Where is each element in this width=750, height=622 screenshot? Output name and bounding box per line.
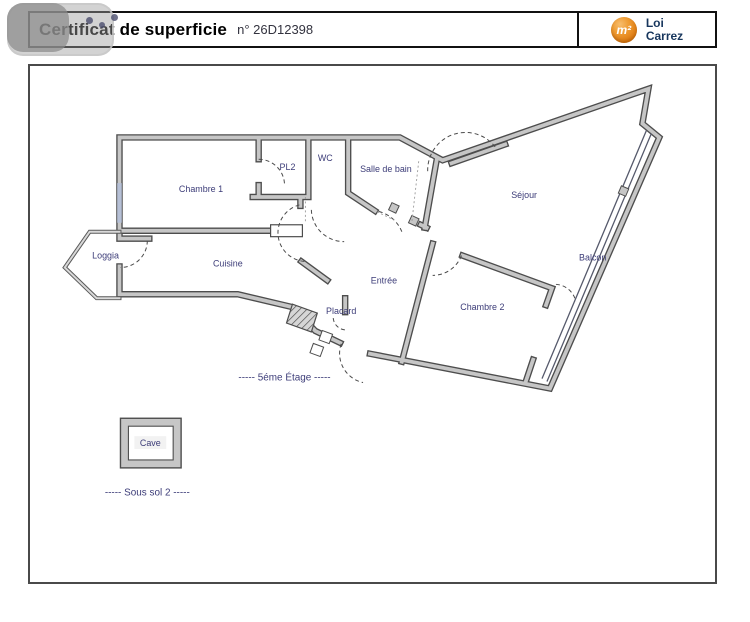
room-label-cave: Cave xyxy=(140,438,161,448)
room-label-cuisine: Cuisine xyxy=(213,258,243,268)
room-label-placard: Placard xyxy=(326,306,356,316)
room-label-chambre1: Chambre 1 xyxy=(179,184,223,194)
room-label-wc: WC xyxy=(318,153,333,163)
loi-text: Loi xyxy=(646,17,683,30)
header-title-area: Certificat de superficie n° 26D12398 xyxy=(30,13,577,46)
door-jamb xyxy=(389,203,400,214)
carrez-text: Carrez xyxy=(646,30,683,43)
certificate-page: Certificat de superficie n° 26D12398 m² … xyxy=(0,0,750,622)
loi-carrez-label: Loi Carrez xyxy=(646,17,683,43)
floor-plan-frame: Chambre 1 PL2 WC Salle de bain Séjour Ba… xyxy=(28,64,717,584)
window-chambre1 xyxy=(117,183,122,223)
room-label-loggia: Loggia xyxy=(92,251,119,261)
m2-logo-icon: m² xyxy=(611,17,637,43)
header: Certificat de superficie n° 26D12398 m² … xyxy=(28,11,717,48)
hatched-duct xyxy=(287,304,318,332)
placard-compartment xyxy=(310,343,324,356)
walls-outline-layer xyxy=(119,89,659,389)
floor-caption-5eme-etage: ----- 5éme Étage ----- xyxy=(238,373,330,384)
room-label-chambre2: Chambre 2 xyxy=(460,302,504,312)
room-label-pl2: PL2 xyxy=(280,162,296,172)
loi-carrez-logo: m² Loi Carrez xyxy=(577,13,715,46)
document-title: Certificat de superficie xyxy=(39,20,227,40)
floor-plan-drawing: Chambre 1 PL2 WC Salle de bain Séjour Ba… xyxy=(30,66,715,582)
document-number: n° 26D12398 xyxy=(237,22,313,37)
cased-opening xyxy=(271,225,303,237)
loggia-walls xyxy=(65,232,120,298)
floor-caption-sous-sol: ----- Sous sol 2 ----- xyxy=(105,488,190,499)
walls-fill-layer xyxy=(119,89,659,389)
room-label-balcon: Balcon xyxy=(579,252,606,262)
room-label-salle-de-bain: Salle de bain xyxy=(360,164,412,174)
room-label-sejour: Séjour xyxy=(511,190,537,200)
room-label-entree: Entrée xyxy=(371,275,397,285)
m2-symbol: m² xyxy=(616,23,631,37)
